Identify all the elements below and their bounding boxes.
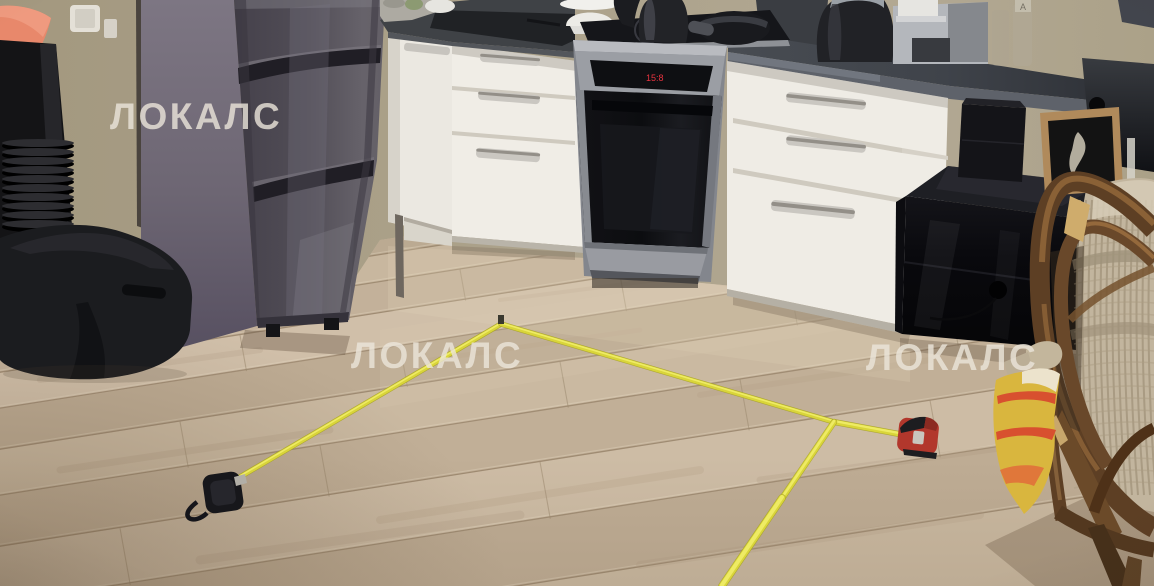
svg-text:ЛОКАЛС: ЛОКАЛС xyxy=(110,96,282,137)
svg-text:ЛОКАЛС: ЛОКАЛС xyxy=(351,335,523,376)
svg-text:ЛОКАЛС: ЛОКАЛС xyxy=(866,337,1038,378)
